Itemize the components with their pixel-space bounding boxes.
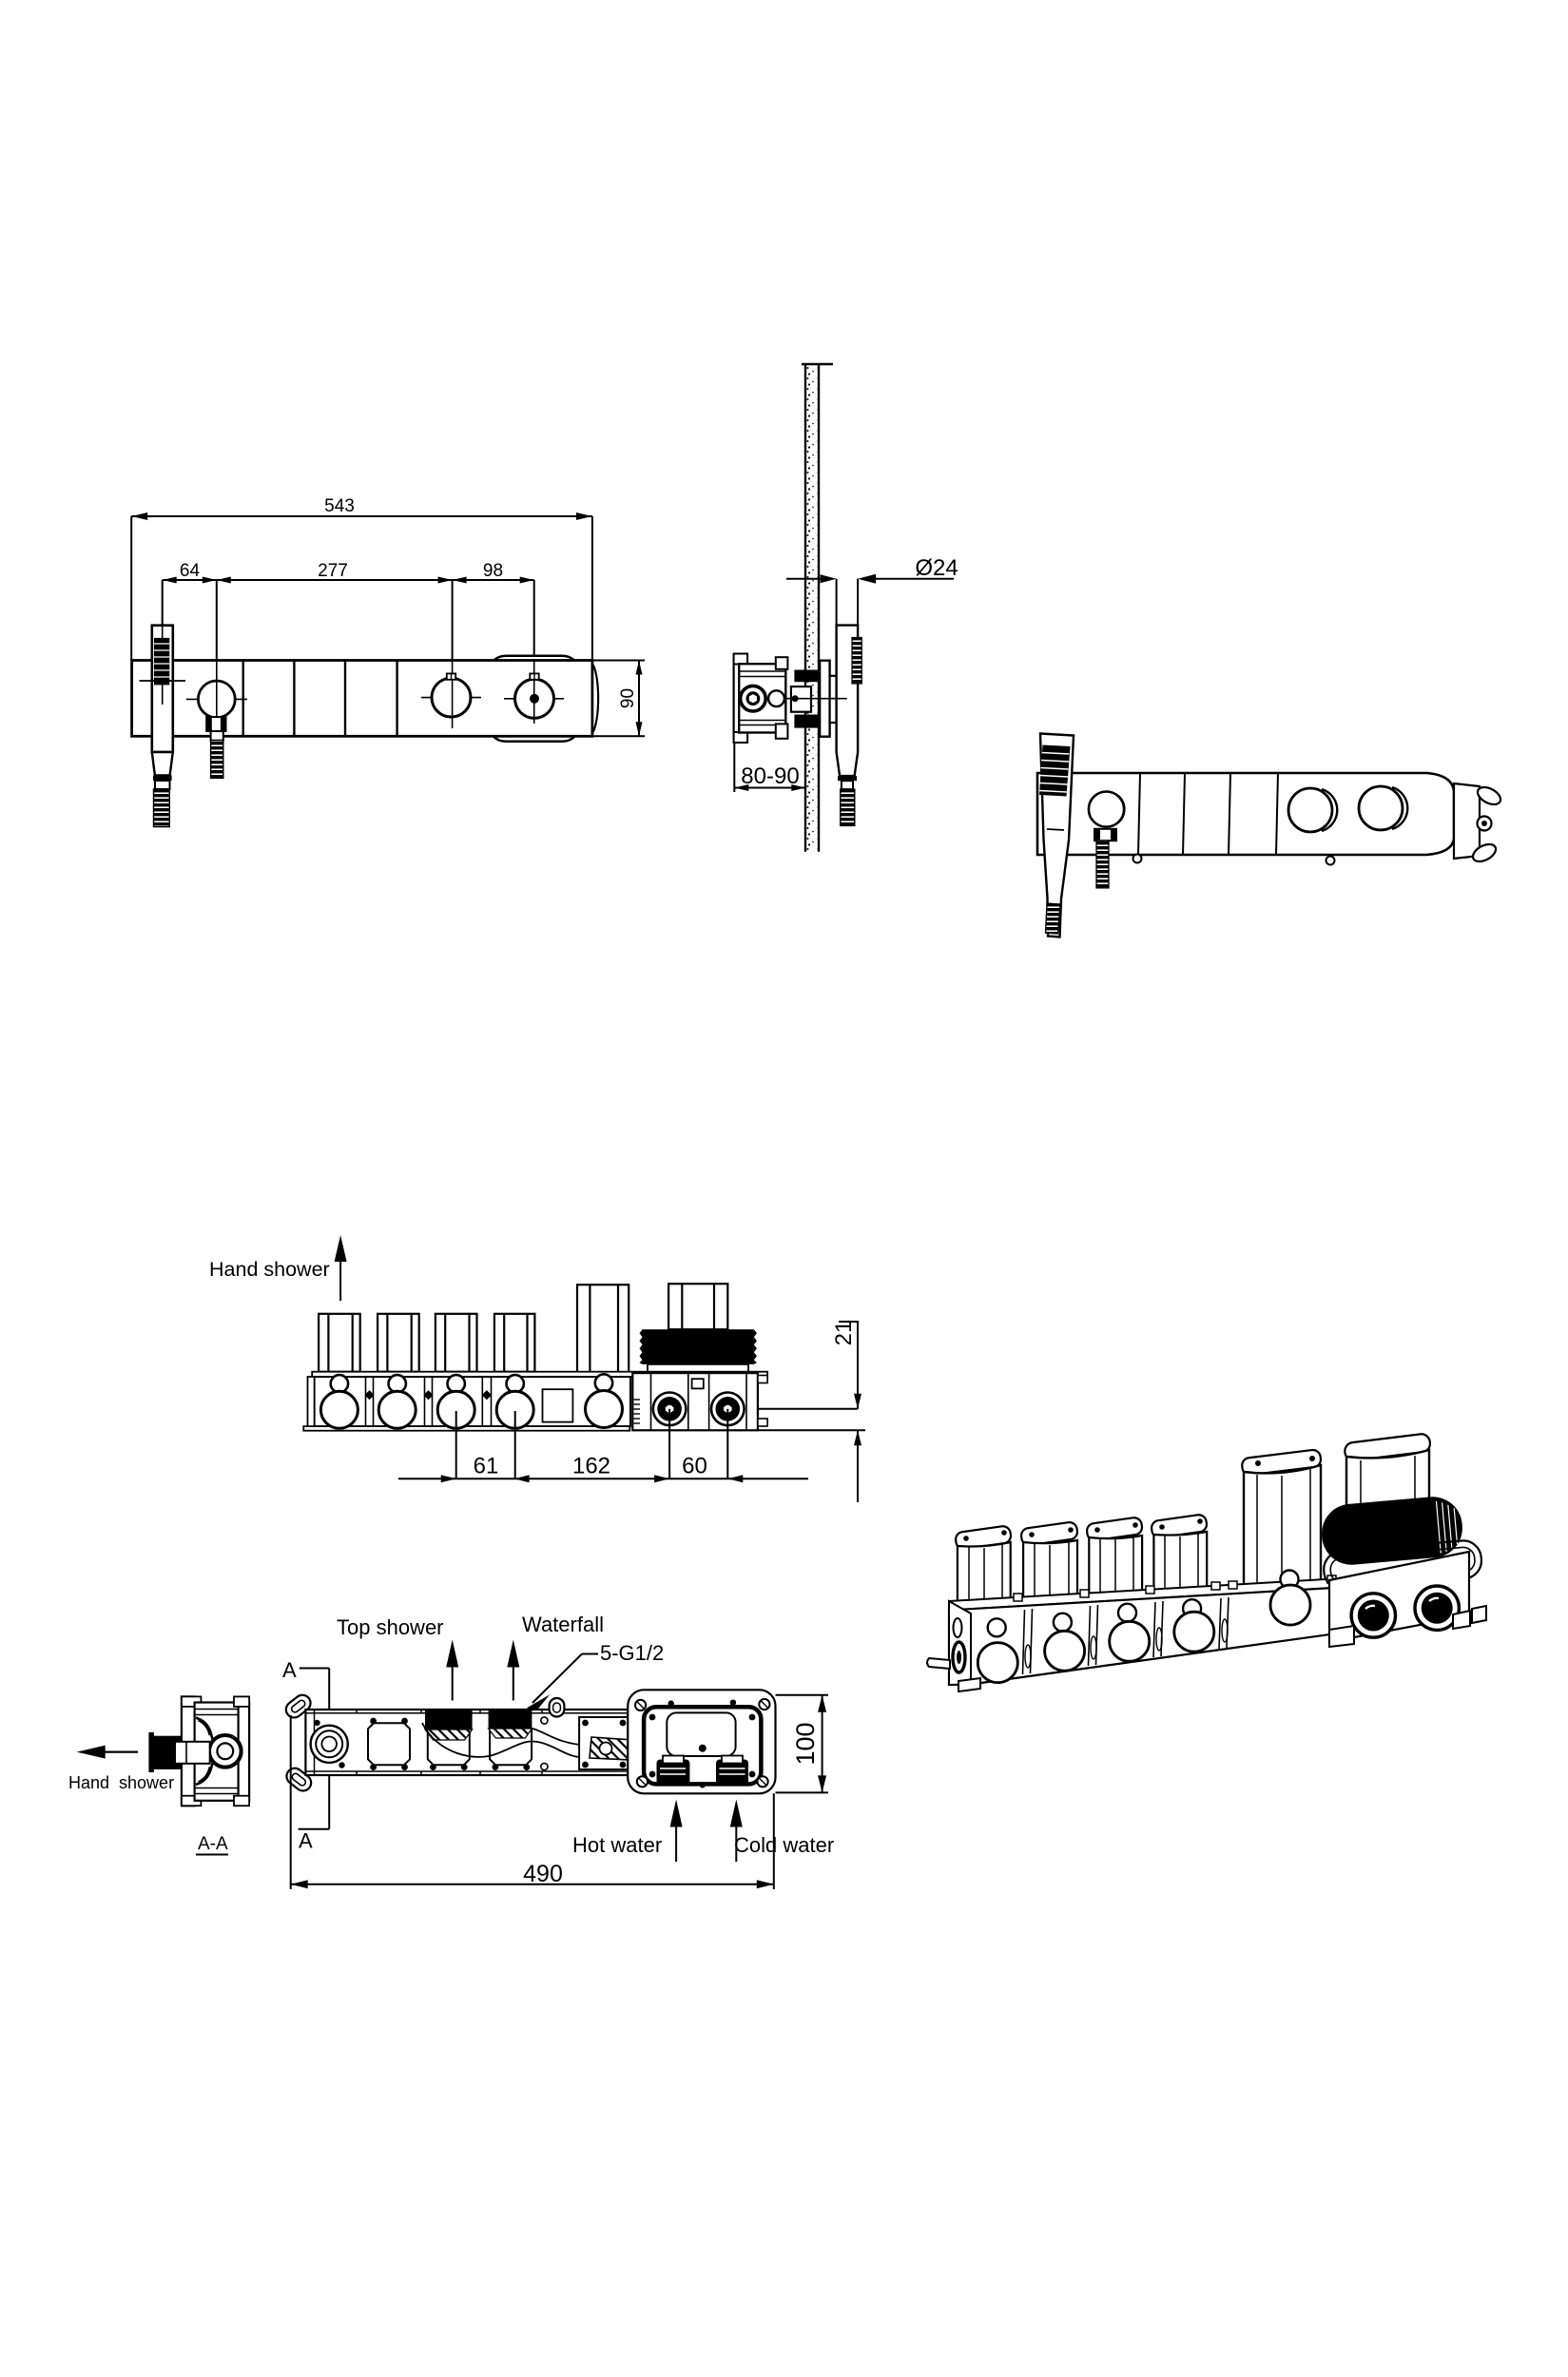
svg-text:Cold water: Cold water [734, 1833, 834, 1857]
svg-text:A-A: A-A [198, 1834, 228, 1854]
svg-text:162: 162 [572, 1454, 610, 1479]
svg-text:Hand shower: Hand shower [68, 1773, 174, 1792]
svg-text:Hand shower: Hand shower [209, 1258, 330, 1281]
svg-text:80-90: 80-90 [741, 763, 799, 789]
svg-text:A: A [282, 1658, 297, 1682]
svg-text:60: 60 [682, 1454, 707, 1479]
svg-text:543: 543 [324, 496, 355, 516]
svg-text:A: A [299, 1829, 313, 1853]
svg-text:Hot water: Hot water [572, 1833, 662, 1857]
svg-text:490: 490 [523, 1861, 563, 1887]
svg-text:64: 64 [180, 561, 201, 581]
svg-text:Top shower: Top shower [337, 1615, 444, 1639]
svg-text:61: 61 [474, 1454, 499, 1479]
svg-text:98: 98 [483, 561, 503, 581]
svg-text:21: 21 [831, 1321, 857, 1346]
svg-text:Ø24: Ø24 [915, 555, 958, 581]
svg-text:100: 100 [791, 1722, 820, 1765]
svg-text:277: 277 [318, 561, 348, 581]
svg-text:Waterfall: Waterfall [522, 1613, 604, 1636]
svg-text:90: 90 [618, 688, 638, 708]
svg-text:5-G1/2: 5-G1/2 [600, 1641, 664, 1665]
